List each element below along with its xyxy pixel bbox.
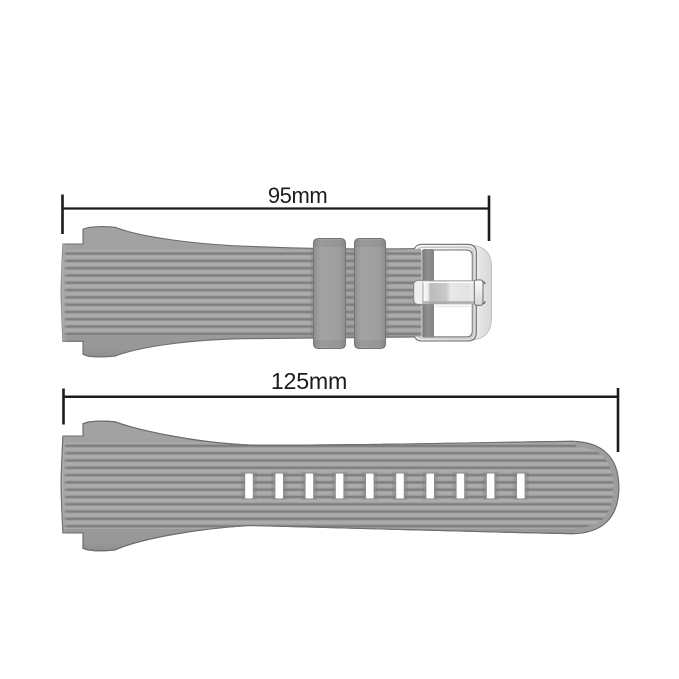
svg-text:125mm: 125mm xyxy=(271,368,347,394)
svg-text:95mm: 95mm xyxy=(268,183,328,208)
